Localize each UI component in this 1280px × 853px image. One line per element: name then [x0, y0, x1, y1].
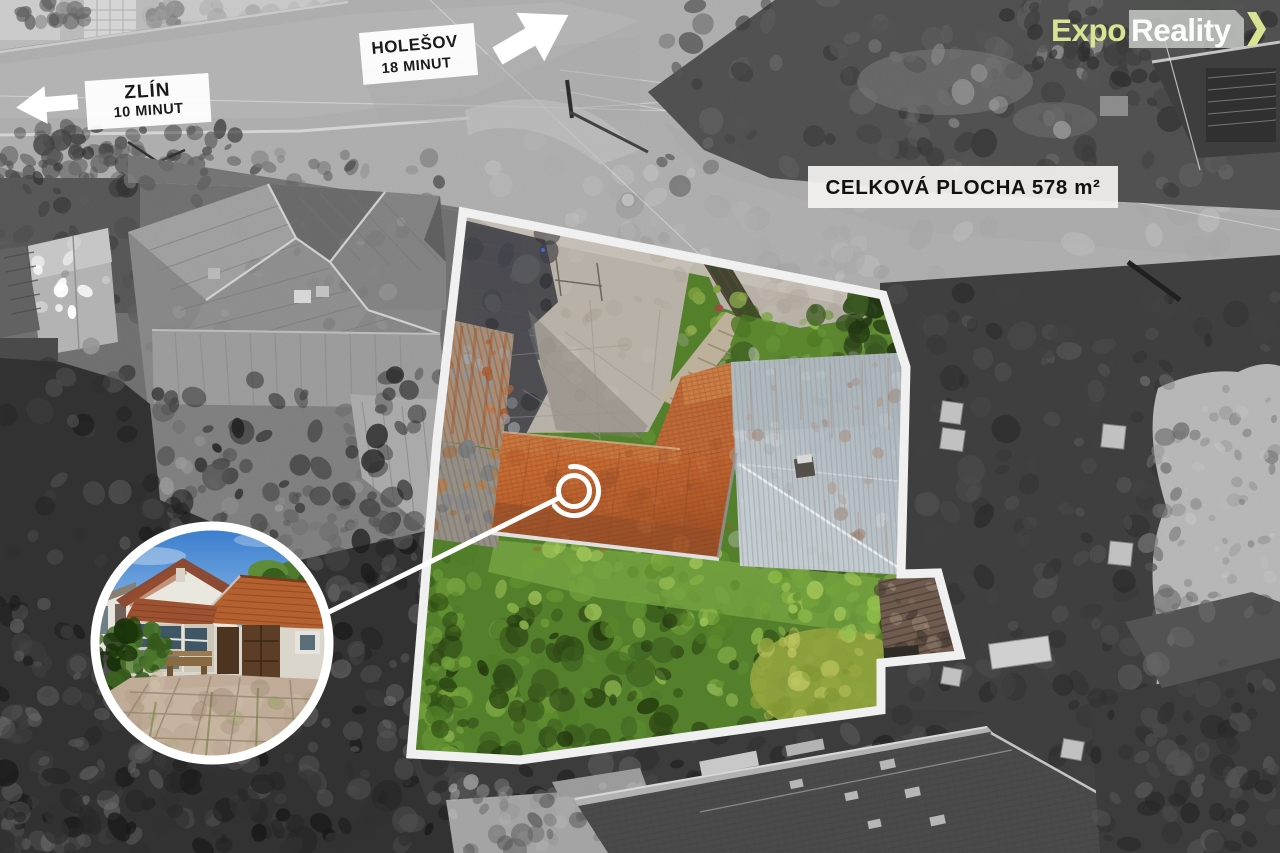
svg-text:Reality: Reality: [1131, 12, 1232, 48]
svg-text:Expo: Expo: [1051, 12, 1126, 48]
svg-text:ZLÍN: ZLÍN: [124, 79, 172, 104]
svg-text:CELKOVÁ PLOCHA 578 m²: CELKOVÁ PLOCHA 578 m²: [826, 176, 1101, 199]
